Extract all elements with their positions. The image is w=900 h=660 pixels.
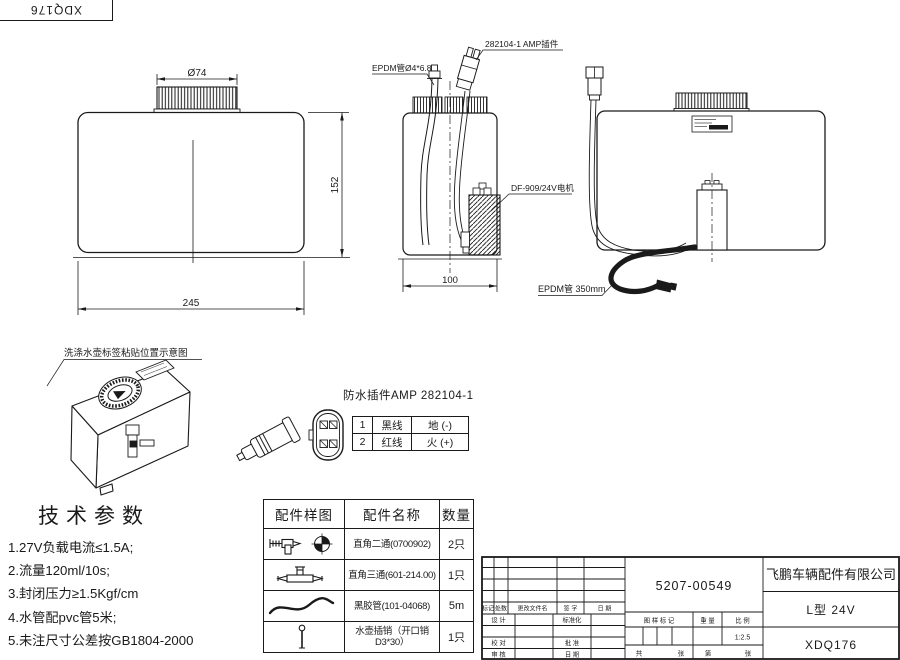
label-weight: 重 量	[700, 617, 715, 625]
scale-value: 1:2.5	[735, 635, 751, 642]
label-scale: 比 例	[735, 616, 749, 625]
dimension-width: 245	[78, 261, 304, 315]
isometric-view-drawing: 洗涤水壶标签粘贴位置示意图	[40, 340, 225, 498]
label-mark: 标记	[482, 605, 494, 613]
part-name: 直角三通(601-214.00)	[345, 560, 440, 591]
col-header-sample: 配件样图	[264, 500, 345, 529]
rubber-tube-icon	[265, 593, 339, 619]
label-date2: 日 期	[565, 651, 579, 659]
svg-text:Ø74: Ø74	[188, 68, 207, 79]
part-qty: 1只	[440, 622, 474, 653]
connector-face-icon	[308, 409, 350, 465]
corner-stamp: XDQ176	[0, 0, 113, 21]
company-name: 飞鹏车辆配件有限公司	[766, 567, 896, 582]
kettle-pin-icon	[265, 622, 339, 652]
label-signature: 签 字	[564, 605, 578, 613]
connector-3d-icon	[232, 407, 314, 463]
connector-detail-title: 防水插件AMP 282104-1	[343, 387, 474, 403]
pin-wire: 黑线	[373, 417, 412, 434]
label-sheets: 张	[678, 649, 685, 658]
tech-params-title: 技术参数	[38, 500, 266, 530]
pin-number: 2	[353, 434, 373, 451]
engineering-drawing-page: XDQ176 Ø74 152	[0, 0, 900, 660]
tee-fitting-icon	[265, 563, 339, 587]
tech-param-item: 3.封闭压力≥1.5Kgf/cm	[8, 582, 266, 605]
label-total: 共	[636, 649, 643, 658]
table-row: 直角三通(601-214.00) 1只	[264, 560, 474, 591]
svg-text:洗涤水壶标签粘贴位置示意图: 洗涤水壶标签粘贴位置示意图	[64, 347, 188, 359]
part-qty: 1只	[440, 560, 474, 591]
dimension-height: 152	[308, 113, 349, 258]
pinout-table: 1 黑线 地 (-) 2 红线 火 (+)	[352, 416, 469, 451]
part-name: 水壶插销（开口销D3*30）	[345, 622, 440, 653]
pin-function: 火 (+)	[412, 434, 469, 451]
part-name: 黑胶管(101-04068)	[345, 591, 440, 622]
epdm-tube-rear	[611, 247, 695, 293]
corner-stamp-code: XDQ176	[30, 3, 82, 17]
svg-text:EPDM管Ø4*6.8: EPDM管Ø4*6.8	[372, 63, 432, 73]
label-drawing-mark: 图 样 标 记	[644, 616, 675, 625]
col-header-name: 配件名称	[345, 500, 440, 529]
tech-param-item: 1.27V负载电流≤1.5A;	[8, 536, 266, 559]
part-number: 5207-00549	[656, 579, 733, 593]
part-qty: 2只	[440, 529, 474, 560]
rear-view-drawing: EPDM管 350mm	[530, 40, 900, 308]
callout-epdm-tube: EPDM管Ø4*6.8	[372, 63, 434, 85]
part-name: 直角二通(0700902)	[345, 529, 440, 560]
tech-param-item: 4.水管配pvc管5米;	[8, 606, 266, 629]
table-row: 黑胶管(101-04068) 5m	[264, 591, 474, 622]
col-header-qty: 数量	[440, 500, 474, 529]
label-check: 校 对	[491, 638, 506, 647]
tech-param-item: 5.未注尺寸公差按GB1804-2000	[8, 629, 266, 652]
table-header-row: 配件样图 配件名称 数量	[264, 500, 474, 529]
svg-text:100: 100	[442, 275, 458, 286]
table-row: 2 红线 火 (+)	[353, 434, 469, 451]
model-type: L型 24V	[806, 603, 855, 617]
filler-cap-rear	[676, 93, 747, 109]
svg-text:EPDM管 350mm: EPDM管 350mm	[538, 283, 606, 294]
title-block: 标记 处数 更改文件名 签 字 日 期 设 计 标准化 校 对 批 准 审 核 …	[481, 556, 900, 660]
drawing-number: XDQ176	[805, 638, 857, 652]
filler-cap-side	[413, 97, 442, 113]
technical-parameters: 技术参数 1.27V负载电流≤1.5A; 2.流量120ml/10s; 3.封闭…	[8, 498, 266, 652]
label-no: 第	[705, 649, 712, 658]
label-approve: 批 准	[565, 638, 579, 647]
dimension-cap-diameter: Ø74	[157, 68, 237, 85]
tech-param-item: 2.流量120ml/10s;	[8, 559, 266, 582]
pin-wire: 红线	[373, 434, 412, 451]
label-date: 日 期	[598, 605, 612, 613]
label-design: 设 计	[491, 615, 506, 624]
product-label-box	[692, 116, 732, 132]
callout-epdm-tube-length: EPDM管 350mm	[538, 283, 614, 296]
svg-text:152: 152	[330, 176, 341, 193]
pin-number: 1	[353, 417, 373, 434]
pin-function: 地 (-)	[412, 417, 469, 434]
label-standardization: 标准化	[563, 615, 583, 624]
filler-cap-front	[157, 87, 237, 109]
elbow-fitting-icon	[265, 531, 339, 557]
table-row: 水壶插销（开口销D3*30） 1只	[264, 622, 474, 653]
front-view-drawing: Ø74 152 245	[55, 65, 375, 323]
part-qty: 5m	[440, 591, 474, 622]
table-row: 直角二通(0700902) 2只	[264, 529, 474, 560]
table-row: 1 黑线 地 (-)	[353, 417, 469, 434]
label-changed-file: 更改文件名	[517, 605, 547, 613]
label-count: 处数	[495, 605, 507, 613]
parts-table: 配件样图 配件名称 数量	[263, 499, 474, 653]
amp-connector-rear	[586, 67, 603, 100]
amp-connector-side	[455, 47, 482, 91]
svg-text:245: 245	[183, 298, 200, 309]
tank-body-front	[78, 113, 304, 253]
label-review: 审 核	[491, 650, 506, 659]
label-sheet: 张	[745, 649, 752, 658]
